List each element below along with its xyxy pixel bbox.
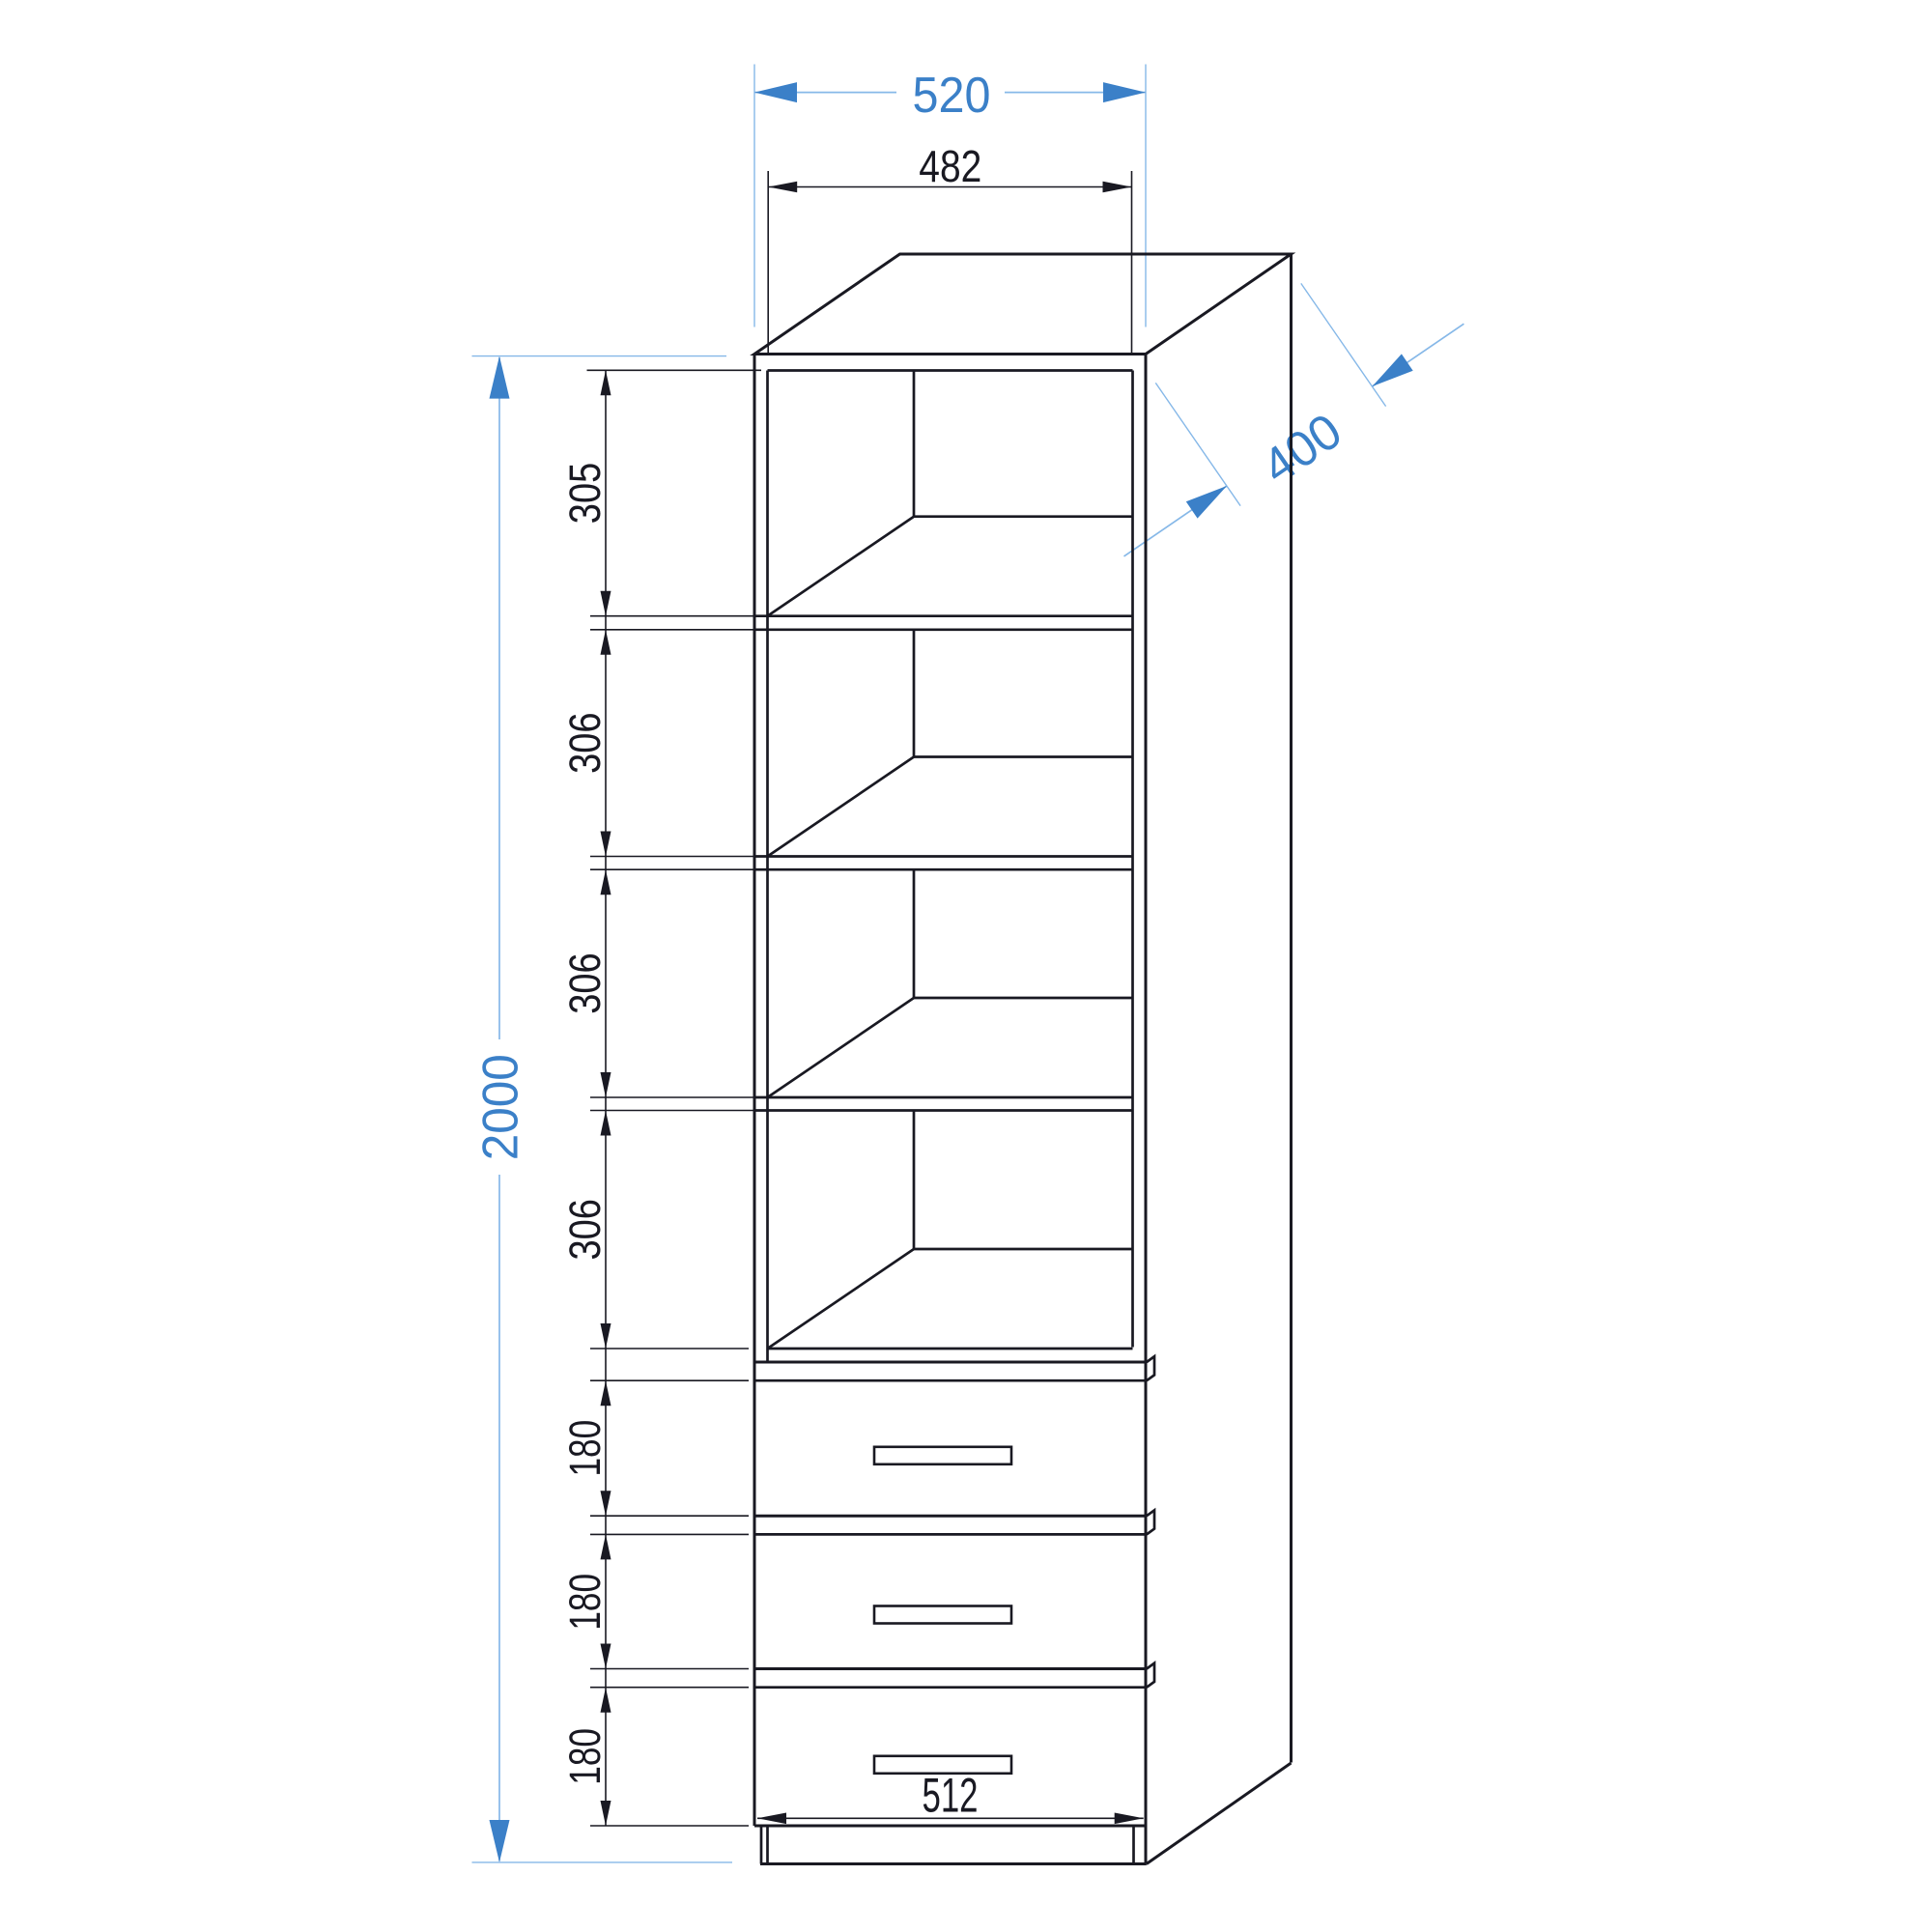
svg-text:305: 305 <box>560 463 610 524</box>
svg-text:306: 306 <box>560 1199 610 1260</box>
svg-text:2000: 2000 <box>472 1054 528 1160</box>
svg-text:180: 180 <box>560 1574 610 1631</box>
svg-text:520: 520 <box>913 67 991 123</box>
svg-text:306: 306 <box>560 952 610 1013</box>
svg-text:180: 180 <box>560 1728 610 1785</box>
svg-text:482: 482 <box>919 141 981 191</box>
svg-text:180: 180 <box>560 1420 610 1477</box>
svg-text:512: 512 <box>923 1769 979 1823</box>
svg-text:306: 306 <box>560 713 610 774</box>
